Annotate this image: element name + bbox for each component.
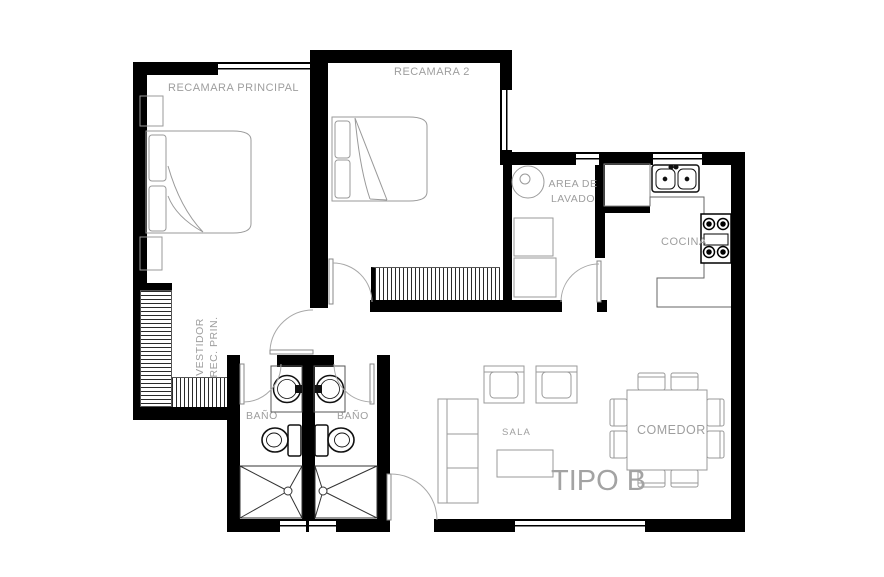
toilet-bowl-inner (267, 433, 282, 447)
label-living-room: SALA (502, 427, 531, 438)
furniture-layer (0, 0, 884, 577)
master-bed (146, 131, 251, 233)
label-bathroom-left: BAÑO (246, 410, 278, 422)
sofa (438, 399, 478, 503)
door-laundry (561, 261, 601, 302)
toilet-bowl (328, 428, 354, 452)
dining-chair (671, 373, 698, 390)
label-closet: VESTIDOR REC. PRIN. (193, 292, 221, 402)
washer (514, 218, 553, 256)
armchair (536, 366, 577, 403)
door-entrance (387, 474, 437, 520)
label-closet-line2: REC. PRIN. (208, 317, 220, 378)
dining-chair (707, 399, 724, 426)
armchair (484, 366, 524, 403)
toilet-tank (288, 425, 301, 456)
label-laundry-line1: AREA DE (548, 178, 597, 190)
water-heater-center (520, 174, 530, 184)
toilet-tank (315, 425, 328, 456)
blanket-fold (355, 118, 387, 200)
faucet (295, 385, 302, 393)
bathroom-left-group (240, 366, 302, 518)
door-master-bedroom (270, 310, 313, 354)
toilet-bowl (262, 428, 288, 452)
door-bathroom-left (240, 364, 281, 404)
label-bedroom2: RECAMARA 2 (394, 66, 470, 78)
bedroom2-bed-group (332, 117, 427, 201)
lavatory-sink-inner (278, 380, 297, 399)
nightstand-top (140, 96, 163, 126)
label-plan-type: TIPO B (551, 465, 646, 498)
dryer (514, 258, 556, 297)
refrigerator (604, 164, 650, 206)
dining-chair (671, 470, 698, 487)
toilet-bowl-inner (335, 433, 350, 447)
dining-chair (638, 373, 665, 390)
door-bedroom2 (329, 259, 372, 304)
bedroom2-bed (332, 117, 427, 201)
sofa-cushion-lines (447, 399, 478, 503)
pillow (149, 135, 166, 181)
label-closet-line1: VESTIDOR (194, 318, 206, 376)
pillow (335, 160, 350, 198)
label-bathroom-right: BAÑO (337, 410, 369, 422)
dining-chair (610, 399, 627, 426)
label-master-bedroom: RECAMARA PRINCIPAL (168, 82, 299, 94)
label-laundry-line2: LAVADO (551, 193, 595, 205)
floor-plan: RECAMARA PRINCIPAL RECAMARA 2 AREA DE LA… (0, 0, 884, 577)
pillow (335, 121, 350, 158)
shower (240, 466, 302, 518)
blanket-fold (168, 166, 203, 232)
master-bed-group (140, 96, 251, 270)
pillow (149, 186, 166, 231)
kitchen-sink (652, 165, 699, 192)
label-dining-room: COMEDOR (637, 423, 706, 437)
faucet (315, 385, 322, 393)
nightstand-bottom (140, 237, 162, 270)
dining-chair (707, 431, 724, 458)
shower (315, 466, 377, 518)
water-heater (512, 166, 544, 198)
bathroom-right-group (314, 366, 377, 518)
label-kitchen: COCINA (661, 236, 707, 248)
label-laundry: AREA DE LAVADO (544, 177, 602, 207)
dining-chair (610, 431, 627, 458)
coffee-table (497, 450, 553, 477)
lavatory-sink-inner (321, 380, 340, 399)
